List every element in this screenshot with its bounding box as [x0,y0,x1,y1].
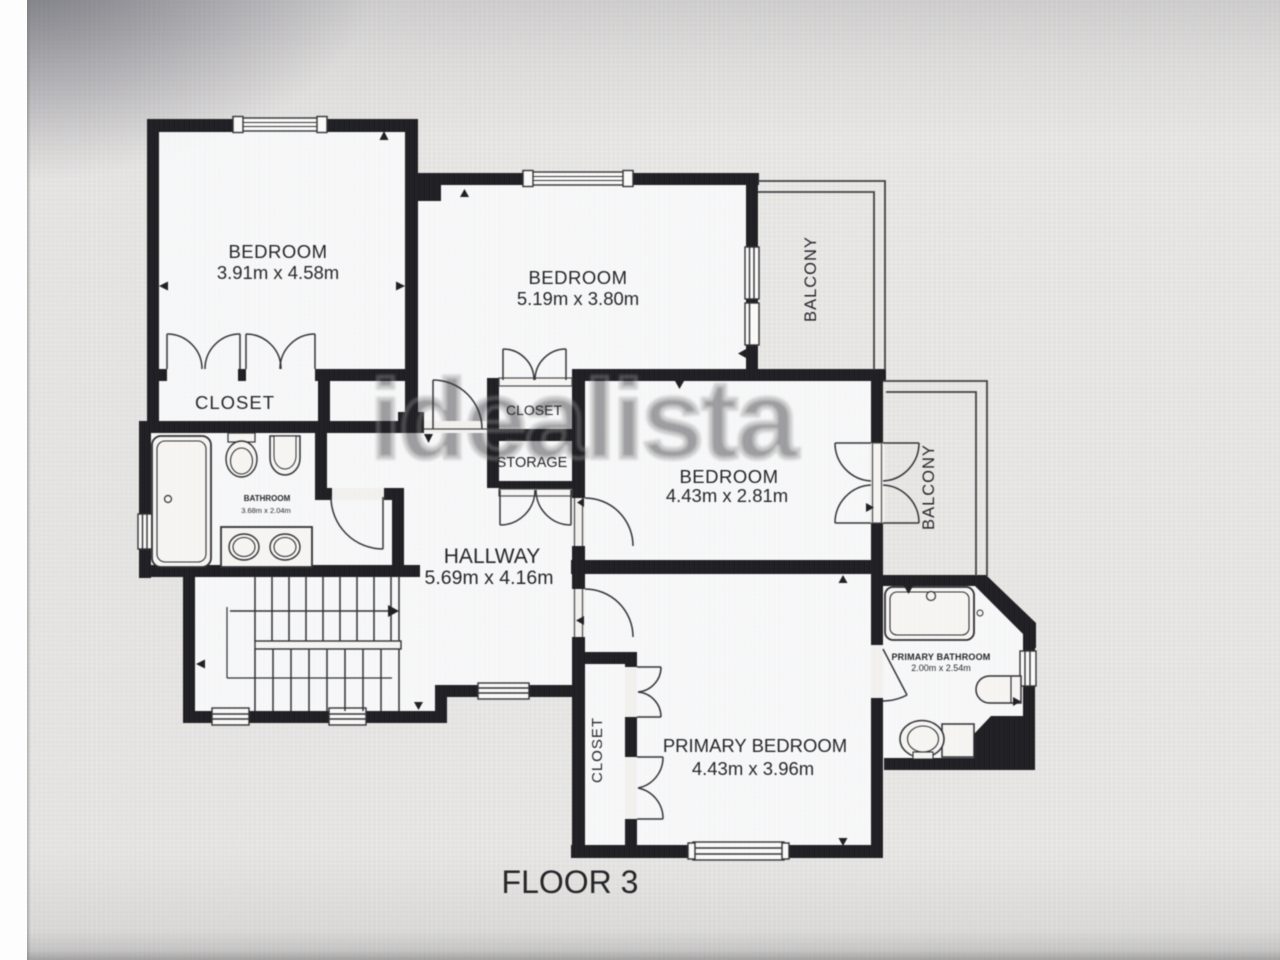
svg-text:PRIMARY BEDROOM: PRIMARY BEDROOM [663,735,847,756]
svg-text:3.68m x 2.04m: 3.68m x 2.04m [241,506,291,515]
svg-text:BALCONY: BALCONY [802,236,820,322]
svg-text:CLOSET: CLOSET [589,717,606,783]
svg-text:HALLWAY: HALLWAY [444,545,540,568]
svg-text:BATHROOM: BATHROOM [244,494,291,503]
svg-text:BEDROOM: BEDROOM [528,267,627,288]
svg-text:idealista: idealista [370,357,799,482]
svg-text:3.91m x 4.58m: 3.91m x 4.58m [217,262,339,283]
svg-text:FLOOR 3: FLOOR 3 [502,864,639,900]
svg-text:4.43m x 2.81m: 4.43m x 2.81m [666,485,788,506]
svg-text:CLOSET: CLOSET [195,392,275,413]
svg-text:STORAGE: STORAGE [497,455,568,471]
svg-text:5.19m x 3.80m: 5.19m x 3.80m [517,288,639,309]
svg-text:BEDROOM: BEDROOM [679,466,778,487]
svg-text:2.00m x 2.54m: 2.00m x 2.54m [911,663,971,673]
svg-text:5.69m x 4.16m: 5.69m x 4.16m [425,567,554,589]
svg-text:4.43m x 3.96m: 4.43m x 3.96m [692,758,814,779]
svg-text:BALCONY: BALCONY [920,444,938,530]
svg-text:BEDROOM: BEDROOM [228,241,327,262]
svg-text:CLOSET: CLOSET [506,402,562,418]
svg-text:PRIMARY BATHROOM: PRIMARY BATHROOM [891,652,990,662]
